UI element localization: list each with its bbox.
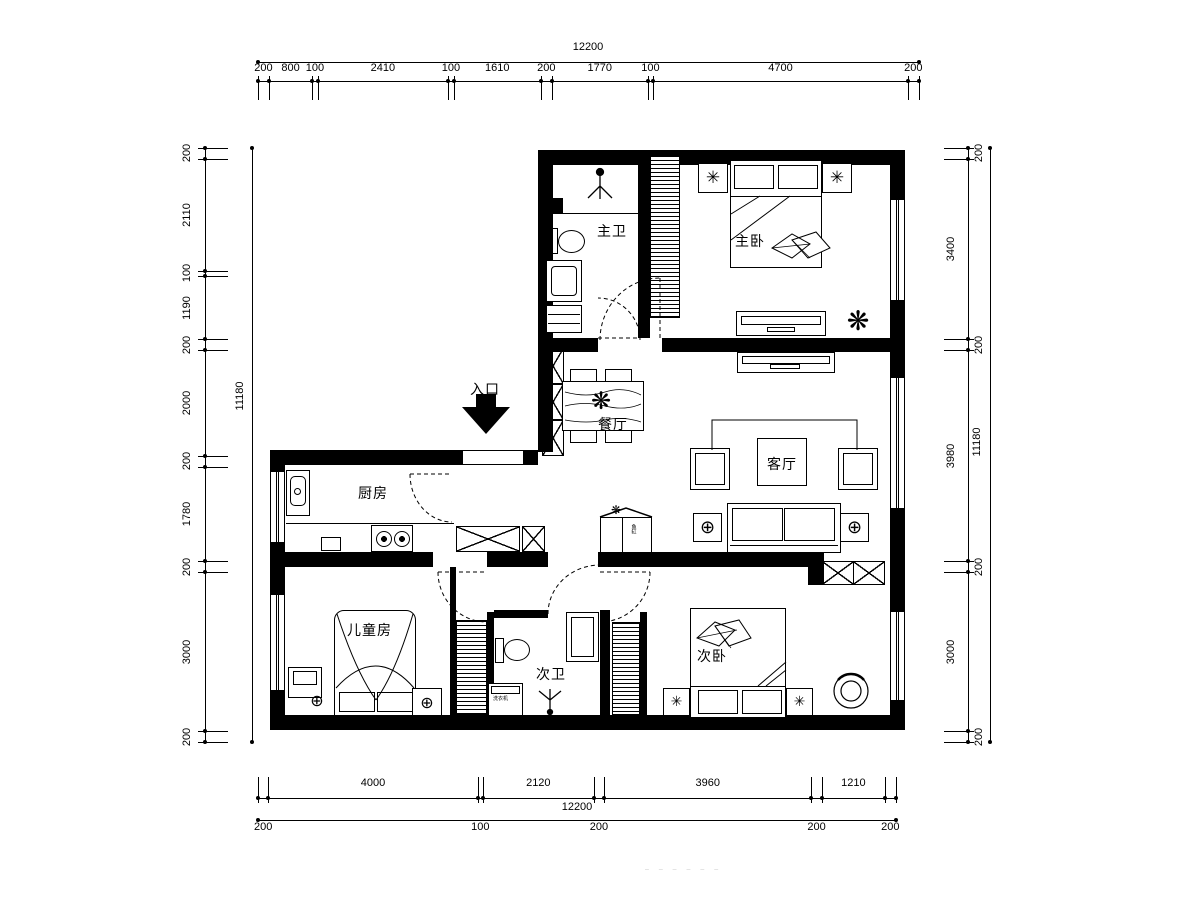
floor-plan-canvas: 2008001002410100161020017701004700200122… — [0, 0, 1200, 900]
shower-head-master-icon — [588, 169, 612, 200]
papasan-chair — [834, 674, 868, 708]
entrance-arrow-icon — [462, 394, 510, 434]
door-arc-master-bath — [598, 298, 640, 340]
bed-second-fold — [758, 662, 786, 686]
bed-master-fold — [731, 196, 790, 240]
door-arcs — [410, 278, 660, 622]
shower-head-second-icon — [539, 689, 561, 715]
door-arc-kids — [438, 572, 487, 622]
door-arc-entrance — [410, 474, 452, 522]
living-rug-line — [712, 420, 857, 450]
door-arc-master-suite — [600, 278, 660, 340]
pillow-pile-second — [697, 620, 751, 648]
plan-overlay-svg — [0, 0, 1200, 900]
dining-table-grain — [565, 390, 641, 422]
bed-kids-canopy — [336, 614, 414, 700]
door-arc-second-bath — [548, 565, 600, 614]
pillow-pile-master — [772, 232, 830, 258]
aquarium-slant-top — [600, 508, 652, 517]
door-arc-second-bedroom — [600, 572, 650, 622]
watermark-dashes: – – – – – – — [645, 866, 722, 873]
